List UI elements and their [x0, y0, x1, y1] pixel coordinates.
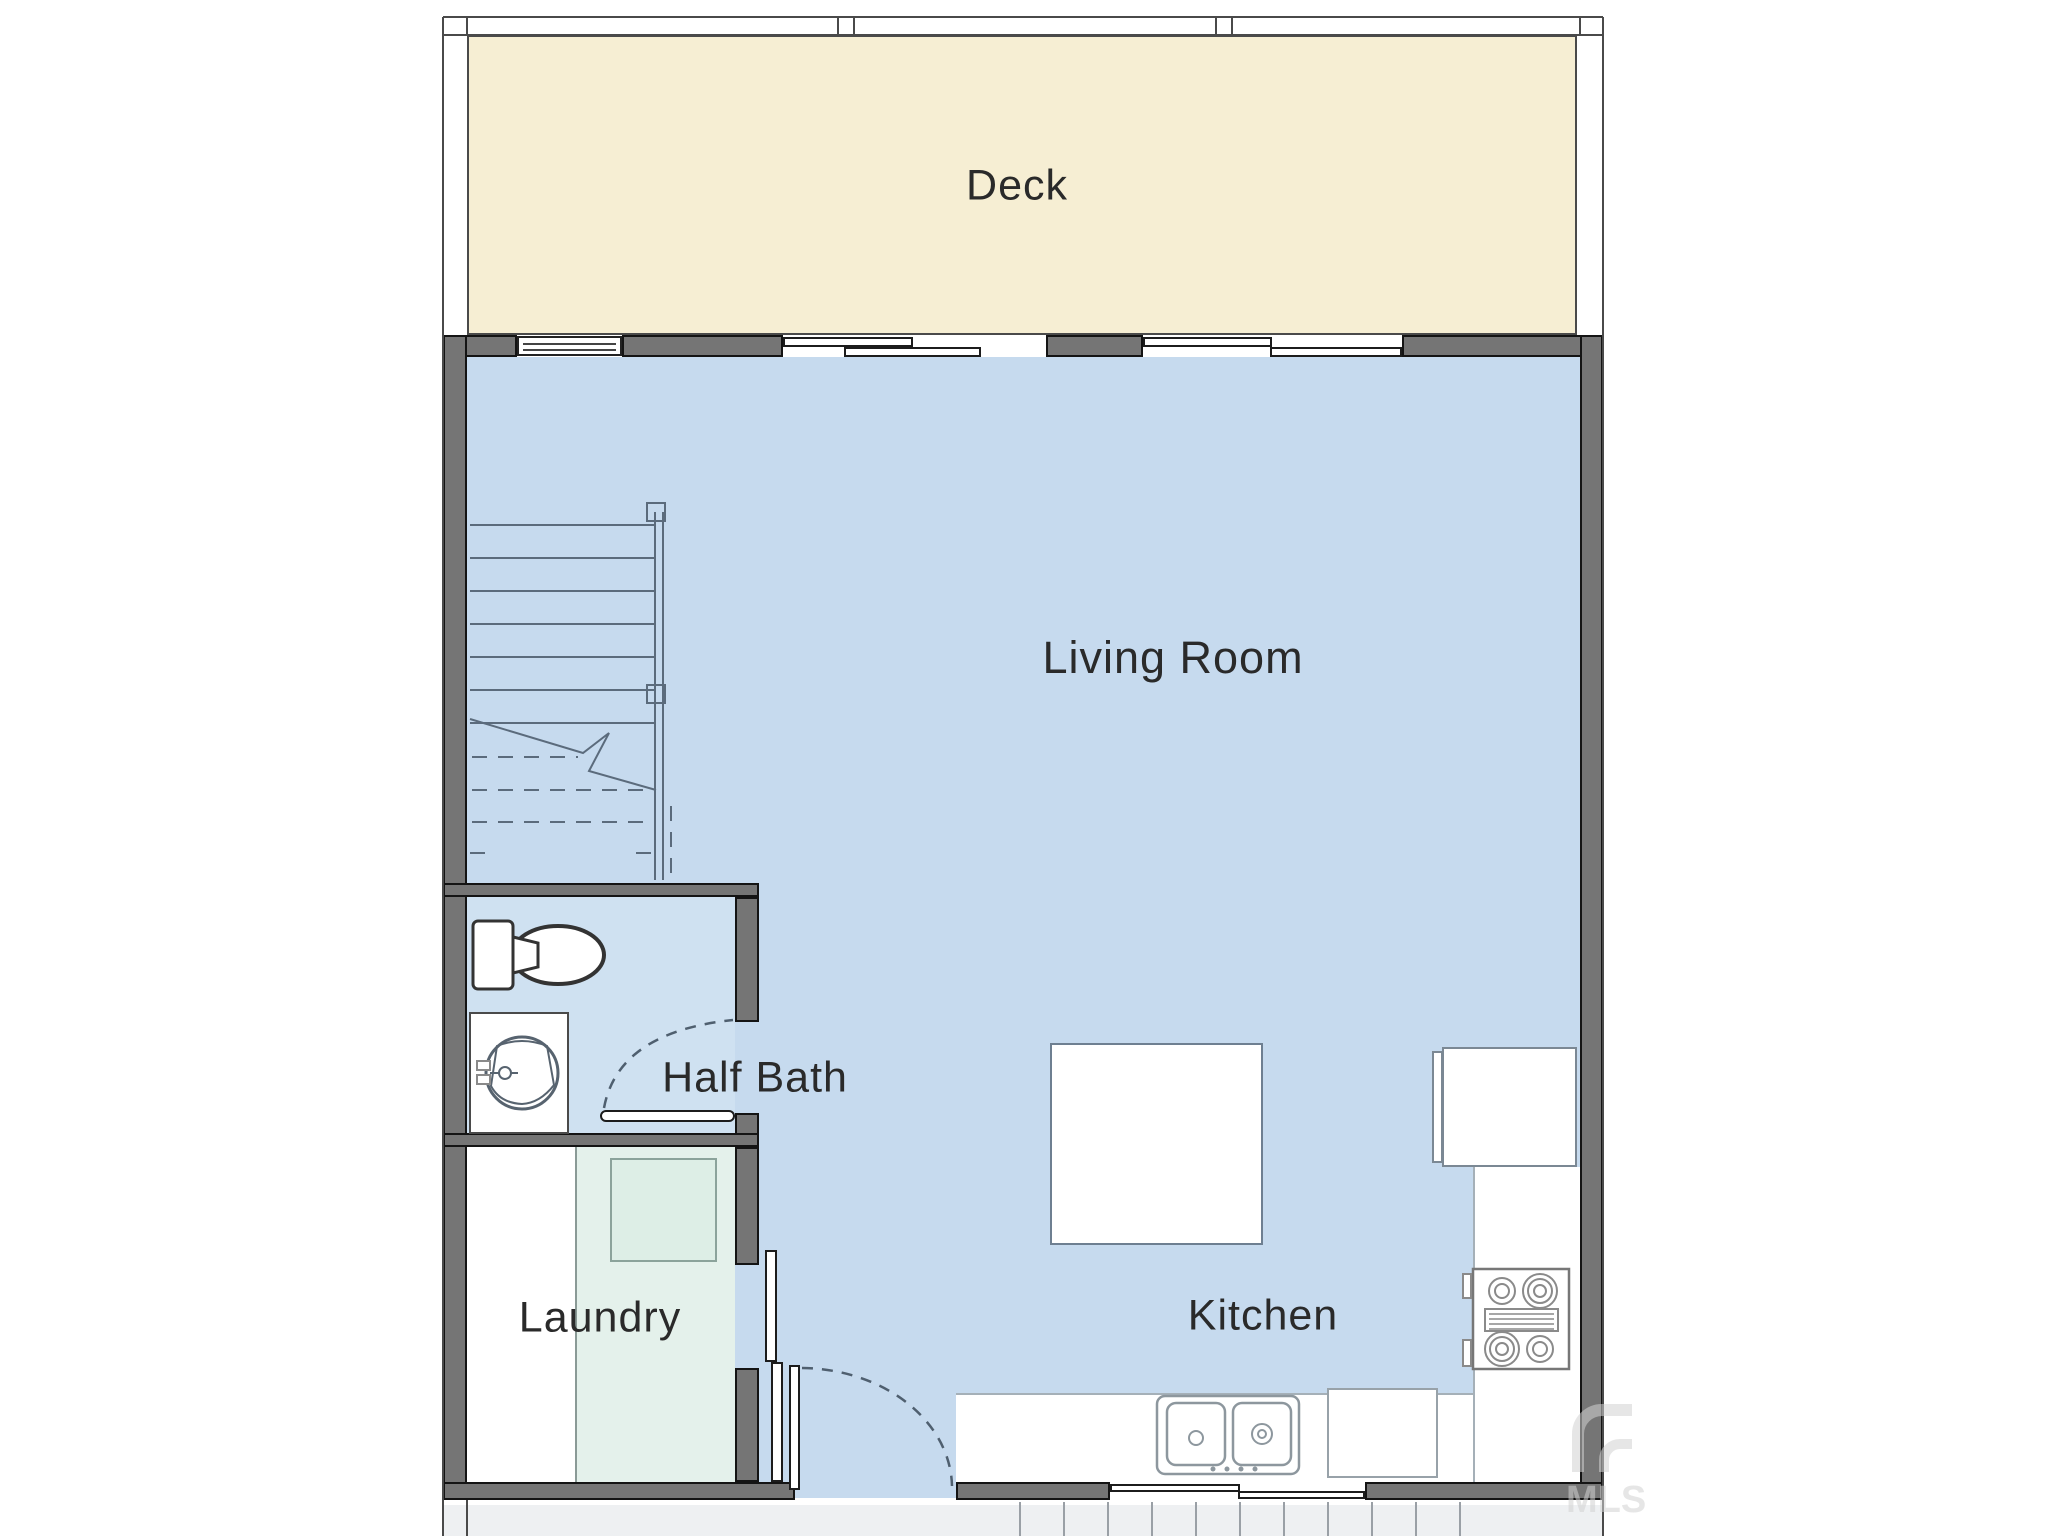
- wall-right: [1580, 335, 1603, 1500]
- wall-top-b: [622, 335, 783, 357]
- window-mullion: [523, 343, 616, 345]
- window-mullion: [523, 349, 616, 351]
- window-top-right-panel-a: [1143, 337, 1272, 347]
- wall-laundry-right-upper: [735, 1147, 759, 1265]
- window-top-left: [517, 336, 622, 356]
- wall-bottom-c: [1365, 1482, 1603, 1500]
- wall-bath-right-upper: [735, 897, 759, 1022]
- refrigerator-body: [1442, 1047, 1577, 1167]
- half-bath-label: Half Bath: [662, 1054, 848, 1103]
- laundry-pocket-door-a: [765, 1250, 777, 1362]
- washer-unit: [610, 1158, 717, 1262]
- window-kitchen-panel-b: [1238, 1491, 1365, 1499]
- wall-top-c: [1046, 335, 1143, 357]
- wall-bottom-a: [443, 1482, 795, 1500]
- laundry-pocket-door-b: [771, 1362, 783, 1482]
- laundry-label: Laundry: [519, 1294, 681, 1343]
- wall-bottom-b: [956, 1482, 1110, 1500]
- kitchen-counter-right: [1473, 1167, 1580, 1482]
- sliding-door-panel-a: [783, 337, 913, 347]
- entry-threshold-floor: [795, 1482, 956, 1498]
- kitchen-label: Kitchen: [1188, 1292, 1338, 1341]
- floor-plan-canvas: Deck Living Room Half Bath Laundry Kitch…: [0, 0, 2048, 1536]
- window-kitchen-panel-a: [1110, 1484, 1240, 1492]
- sliding-door-panel-b: [844, 347, 981, 357]
- wall-top-d: [1402, 335, 1603, 357]
- deck-label: Deck: [966, 162, 1068, 211]
- wall-left: [443, 335, 467, 1500]
- exterior-ground-band: [443, 1505, 1603, 1536]
- wall-laundry-right-lower: [735, 1368, 759, 1482]
- living-room-label: Living Room: [1042, 632, 1303, 684]
- dishwasher: [1327, 1388, 1438, 1478]
- wall-bath-laundry-divider: [443, 1133, 759, 1147]
- kitchen-island: [1050, 1043, 1263, 1245]
- entry-door-leaf: [789, 1365, 800, 1490]
- wall-stair-bath-top: [443, 883, 759, 897]
- half-bath-door-leaf: [600, 1110, 735, 1122]
- window-top-right-panel-b: [1270, 347, 1402, 357]
